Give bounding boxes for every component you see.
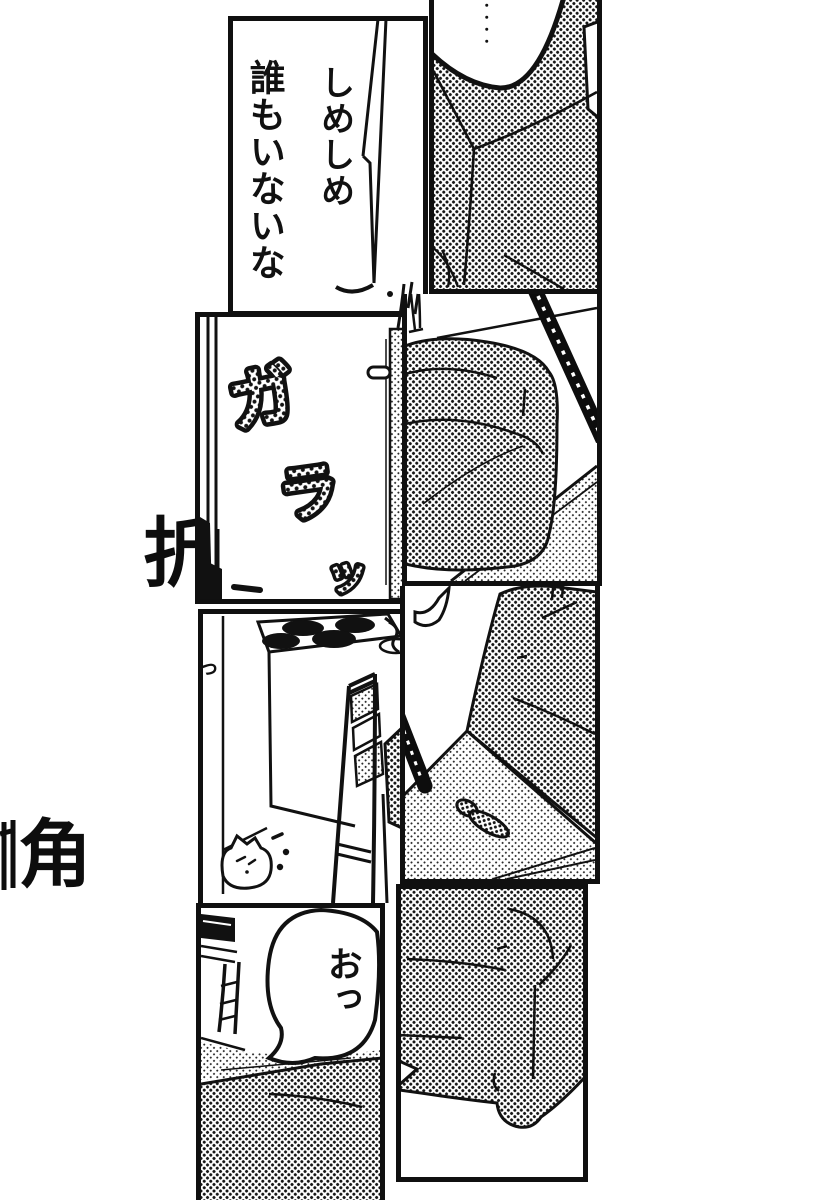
panel7-art — [401, 889, 583, 1177]
margin-kanji-bottom: 角 — [18, 818, 92, 892]
speech-text-left: 誰もいないな — [245, 59, 282, 281]
panel2-art — [434, 0, 597, 289]
panel6-art — [405, 586, 595, 879]
sfx-ga: ガ — [222, 354, 303, 443]
panel-7 — [396, 884, 588, 1182]
panel-4 — [402, 294, 602, 586]
silence-dots-sfx: ・・・・ — [480, 0, 492, 47]
clipped-kanji-strokes — [0, 820, 20, 892]
manga-page: 折 角 しめしめ 誰もいないな ・・・・ — [0, 0, 820, 1200]
panel-3: ガ ラ ッ — [195, 312, 410, 604]
panel3-art: ガ ラ ッ — [200, 317, 405, 599]
panel-6 — [400, 586, 600, 884]
speech-text-right: しめしめ — [317, 65, 352, 209]
sfx-ra: ラ — [274, 455, 343, 533]
panel-2: ・・・・ — [429, 0, 602, 294]
panel-8: おっ — [196, 903, 385, 1200]
panel5-art: っ — [203, 614, 404, 905]
panel-1: しめしめ 誰もいないな — [228, 16, 428, 316]
sfx-small-tsu: っ — [203, 655, 219, 679]
panel4-art — [407, 294, 597, 581]
speech-bubble-text: おっ — [323, 946, 359, 1016]
panel-5: っ — [198, 609, 409, 905]
door-rattle-marks — [380, 278, 428, 332]
speech-bubble-tail — [415, 588, 449, 626]
sfx-tsu: ッ — [326, 550, 368, 599]
